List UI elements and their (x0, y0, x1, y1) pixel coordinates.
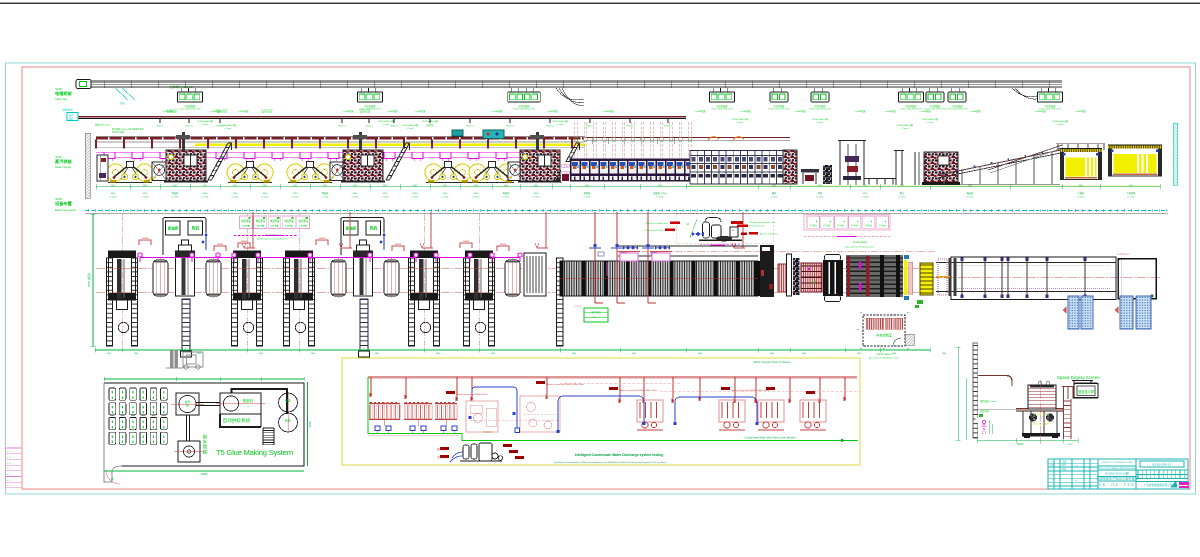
svg-text:蒸汽系统: 蒸汽系统 (591, 310, 601, 314)
svg-text:Consider this template is flat: Consider this template is flat (749, 221, 776, 224)
svg-text:路: 路 (203, 449, 208, 456)
svg-text:风机: 风机 (192, 226, 200, 231)
svg-text:5800: 5800 (311, 353, 315, 355)
svg-text:2200: 2200 (383, 193, 389, 195)
svg-text:DN25 Cy: DN25 Cy (664, 126, 671, 128)
svg-text:4600: 4600 (504, 185, 508, 187)
svg-text:(7 sets): (7 sets) (352, 195, 359, 198)
svg-text:4600: 4600 (534, 185, 538, 187)
svg-text:4600: 4600 (111, 193, 117, 195)
svg-text:[x]×[x]: [x]×[x] (575, 305, 582, 308)
svg-text:(5 sets 10m³): (5 sets 10m³) (261, 109, 273, 112)
svg-text:Not Backup for Counting Electr: Not Backup for Counting Electric (257, 238, 287, 241)
svg-text:5800: 5800 (134, 353, 138, 355)
svg-text:Steam Supply: Steam Supply (55, 165, 72, 169)
svg-text:DN25 Cy: DN25 Cy (546, 126, 553, 128)
svg-text:XXXXX CITY CORRUGATOR LINE: XXXXX CITY CORRUGATOR LINE (1102, 461, 1133, 464)
svg-text:DN25 Cy: DN25 Cy (185, 126, 192, 128)
svg-text:panel▮: panel▮ (271, 224, 278, 227)
svg-text:✖: ✖ (732, 229, 734, 232)
svg-text:4600: 4600 (413, 185, 417, 187)
svg-text:4600: 4600 (233, 185, 237, 187)
svg-text:(7 sets): (7 sets) (927, 121, 934, 124)
svg-text:电控柜▮: 电控柜▮ (284, 219, 294, 223)
svg-text:5800: 5800 (632, 353, 636, 355)
svg-text:电控柜▮: 电控柜▮ (270, 219, 280, 223)
svg-text:▮: ▮ (857, 220, 858, 223)
svg-text:DN25×6: DN25×6 (592, 316, 601, 319)
svg-text:▪ ▪: ▪ ▪ (1052, 479, 1054, 481)
svg-text:▪ ▪ ▪: ▪ ▪ ▪ (1075, 465, 1079, 467)
svg-text:(7 sets): (7 sets) (292, 195, 299, 198)
svg-text:中央控制室: 中央控制室 (876, 333, 892, 338)
svg-text:(7 sets): (7 sets) (533, 195, 540, 198)
svg-text:1AW.52ym: 1AW.52ym (1117, 252, 1129, 256)
svg-text:4600: 4600 (173, 185, 177, 187)
svg-text:WJ250-250×10层: WJ250-250×10层 (1105, 471, 1128, 476)
svg-text:Power Cable 3×95+2×50: Power Cable 3×95+2×50 (901, 108, 922, 111)
svg-text:(7 sets): (7 sets) (1128, 195, 1135, 198)
svg-text:Access Condenser: Access Condenser (760, 233, 778, 236)
svg-text:Cable Tray: Cable Tray (55, 97, 68, 101)
svg-text:4600: 4600 (818, 185, 822, 187)
svg-text:(7 sets): (7 sets) (110, 195, 117, 198)
svg-text:(5 sets 10m³): (5 sets 10m³) (216, 109, 228, 112)
svg-text:(Recycle Control Valve: (Recycle Control Valve (646, 222, 669, 225)
svg-text:(7 sets): (7 sets) (142, 195, 149, 198)
svg-text:6000: 6000 (308, 421, 312, 427)
svg-text:(7 sets): (7 sets) (262, 195, 269, 198)
svg-text:(7 sets): (7 sets) (1078, 195, 1085, 198)
svg-text:Power Cable 3×95+2×50: Power Cable 3×95+2×50 (514, 108, 535, 111)
svg-text:Power Cable 3×95+2×50: Power Cable 3×95+2×50 (180, 108, 201, 111)
svg-text:5800: 5800 (802, 353, 806, 355)
svg-text:4600: 4600 (968, 185, 972, 187)
svg-text:(7 sets): (7 sets) (503, 195, 510, 198)
svg-text:(7 sets): (7 sets) (202, 123, 209, 126)
svg-text:▮: ▮ (816, 220, 817, 223)
svg-text:DN25 Cy: DN25 Cy (365, 126, 372, 128)
svg-text:Steam Connection DN80×2.4Bar 1: Steam Connection DN80×2.4Bar 100m (546, 383, 584, 386)
svg-text:4600: 4600 (863, 185, 867, 187)
svg-text:▪ ·▪·: ▪ ·▪· (7, 468, 11, 471)
svg-text:Control Room: Control Room (853, 241, 867, 244)
svg-text:(Capacity Unit Use: (Capacity Unit Use (645, 229, 664, 232)
svg-text:5800: 5800 (259, 353, 263, 355)
svg-text:4600: 4600 (1079, 185, 1083, 187)
svg-text:蒸汽供给: 蒸汽供给 (55, 158, 73, 165)
svg-text:瓦楚纸板生产线总平面布置图: 瓦楚纸板生产线总平面布置图 (1096, 475, 1137, 480)
svg-text:DN25 Cy: DN25 Cy (338, 126, 345, 128)
svg-text:▮: ▮ (830, 220, 831, 223)
svg-text:Power Cable 3×95+2×50: Power Cable 3×95+2×50 (769, 108, 790, 111)
svg-text:4600: 4600 (658, 185, 662, 187)
svg-text:▮: ▮ (885, 220, 886, 223)
svg-text:4600: 4600 (143, 185, 147, 187)
svg-text:5800: 5800 (353, 193, 359, 195)
svg-text:1500: 1500 (1068, 444, 1074, 446)
svg-text:12000: 12000 (200, 472, 208, 476)
svg-text:吊轨: 吊轨 (120, 101, 125, 105)
svg-text:配胶机: 配胶机 (243, 398, 254, 403)
svg-text:(7+05×: (7+05× (810, 225, 818, 228)
svg-text:5800: 5800 (375, 353, 379, 355)
svg-text:(7 sets): (7 sets) (817, 121, 824, 124)
svg-text:YB. GA. FEB: YB. GA. FEB (1099, 483, 1135, 487)
svg-text:DN25 Cy: DN25 Cy (626, 126, 633, 128)
svg-text:8000 (跨度): 8000 (跨度) (87, 273, 91, 287)
svg-text:4600: 4600 (383, 185, 387, 187)
svg-text:▪ ·▪·: ▪ ·▪· (7, 450, 11, 453)
svg-text:T5 Glue Making System: T5 Glue Making System (216, 448, 293, 457)
svg-text:(7 sets): (7 sets) (899, 195, 906, 198)
svg-text:▪ ·▪·: ▪ ·▪· (7, 473, 11, 476)
svg-text:(5 sets 10m³): (5 sets 10m³) (166, 109, 178, 112)
svg-text:电控柜▮: 电控柜▮ (256, 219, 266, 223)
svg-text:5800: 5800 (436, 353, 440, 355)
svg-text:WJ250-2500-2-F: WJ250-2500-2-F (1152, 463, 1172, 467)
svg-text:(7 sets): (7 sets) (202, 195, 209, 198)
svg-text:4600: 4600 (443, 185, 447, 187)
svg-text:panel▮: panel▮ (285, 224, 292, 227)
svg-text:DN25 Cy: DN25 Cy (586, 126, 593, 128)
svg-text:2200: 2200 (143, 193, 149, 195)
svg-text:5800: 5800 (572, 353, 576, 355)
svg-text:(7 sets): (7 sets) (172, 195, 179, 198)
svg-text:5800: 5800 (857, 353, 861, 355)
svg-text:DN25 Cy: DN25 Cy (506, 126, 513, 128)
svg-text:(7 sets): (7 sets) (225, 127, 232, 130)
svg-text:(7 sets): (7 sets) (902, 127, 909, 130)
svg-text:2200: 2200 (443, 193, 449, 195)
svg-text:demo-line is oak: demo-line is oak (749, 225, 765, 227)
svg-text:Work Supply Pipe of Steam: Work Supply Pipe of Steam (754, 360, 791, 364)
svg-text:Steam Connection DN80×2.4Bar 1: Steam Connection DN80×2.4Bar 100m (731, 389, 769, 392)
svg-text:▪▪: ▪▪ (247, 405, 249, 408)
svg-text:DN25 Cy: DN25 Cy (466, 126, 473, 128)
svg-text:4600: 4600 (263, 193, 269, 195)
svg-text:PRODUCTION DRAWING APPROVAL SH: PRODUCTION DRAWING APPROVAL SHEET (1097, 467, 1137, 470)
svg-text:设备布置: 设备布置 (55, 200, 73, 207)
svg-text:(7+05×: (7+05× (823, 225, 831, 228)
svg-text:4600: 4600 (111, 185, 115, 187)
svg-text:5800: 5800 (698, 353, 702, 355)
svg-text:Steam Connection DN80×2.4Bar 1: Steam Connection DN80×2.4Bar 100m (619, 389, 657, 392)
svg-text:4600: 4600 (413, 193, 419, 195)
svg-text:Equipment Layout: Equipment Layout (55, 208, 76, 212)
svg-text:DN25 Cy: DN25 Cy (216, 126, 223, 128)
svg-text:(7+05×: (7+05× (879, 225, 887, 228)
svg-text:4600: 4600 (474, 193, 480, 195)
svg-text:(7+05×: (7+05× (851, 225, 859, 228)
svg-text:▪ ·▪·: ▪ ·▪· (7, 485, 11, 488)
svg-text:▪▪▪: ▪▪▪ (1075, 480, 1077, 482)
svg-text:电缆桥架: 电缆桥架 (55, 90, 73, 97)
svg-text:(By Carton Or Xiaokang Carrier: (By Carton Or Xiaokang Carrier (846, 246, 875, 249)
svg-text:(7 sets): (7 sets) (442, 195, 449, 198)
svg-text:4600: 4600 (323, 185, 327, 187)
svg-text:4600: 4600 (293, 185, 297, 187)
svg-text:▪ ·▪·: ▪ ·▪· (7, 479, 11, 482)
svg-text:panel▮: panel▮ (257, 224, 264, 227)
svg-text:5800: 5800 (534, 193, 540, 195)
svg-text:4600: 4600 (772, 185, 776, 187)
svg-text:▪ ·▪·: ▪ ·▪· (7, 462, 11, 465)
svg-text:4600: 4600 (263, 185, 267, 187)
svg-text:起重吊轨 Crane Rail: 起重吊轨 Crane Rail (170, 85, 194, 89)
svg-text:Power Cable 3×95+2×50: Power Cable 3×95+2×50 (947, 108, 968, 111)
svg-text:2200: 2200 (863, 193, 869, 195)
svg-text:panel▮: panel▮ (242, 224, 249, 227)
svg-text:Steam Connection DN80×2 50m: Steam Connection DN80×2 50m (456, 393, 488, 396)
svg-text:(7 sets): (7 sets) (1057, 123, 1064, 126)
svg-text:▮: ▮ (871, 220, 872, 223)
svg-text:4600: 4600 (474, 185, 478, 187)
svg-text:(7 sets): (7 sets) (584, 195, 591, 198)
svg-text:DN25 Cy: DN25 Cy (156, 126, 163, 128)
svg-text:(7 sets): (7 sets) (232, 195, 239, 198)
svg-text:机: 机 (186, 404, 189, 408)
svg-text:Condensate Water Main Pipe Low: Condensate Water Main Pipe Lower Bracket (744, 436, 795, 440)
svg-text:▪ ▪: ▪ ▪ (1051, 461, 1053, 463)
svg-text:4600: 4600 (585, 185, 589, 187)
svg-text:蒸油阀: 蒸油阀 (346, 226, 357, 231)
svg-text:Intelligent Condensate Water D: Intelligent Condensate Water Discharge s… (575, 453, 664, 457)
svg-text:4600: 4600 (1129, 185, 1133, 187)
svg-text:Speed Display Screen: Speed Display Screen (1057, 375, 1100, 380)
svg-text:Total Steam Consumption of Who: Total Steam Consumption of Whole line pr… (554, 461, 667, 464)
svg-text:(7 sets): (7 sets) (557, 123, 564, 126)
svg-text:蒸油阀: 蒸油阀 (168, 226, 179, 231)
svg-text:搅拌: 搅拌 (185, 400, 191, 404)
svg-text:电控柜▮: 电控柜▮ (241, 219, 251, 223)
svg-text:(7 sets): (7 sets) (383, 123, 390, 126)
svg-text:▪▪▪▪: ▪▪▪▪ (1075, 486, 1078, 488)
svg-text:panel▮: panel▮ (300, 224, 307, 227)
svg-text:5800: 5800 (107, 353, 111, 355)
svg-text:(7 sets): (7 sets) (862, 195, 869, 198)
svg-text:(7+05×: (7+05× (865, 225, 873, 228)
svg-text:2200: 2200 (233, 193, 239, 195)
svg-text:DN25 Cy: DN25 Cy (426, 126, 433, 128)
svg-text:(7 sets): (7 sets) (407, 127, 414, 130)
svg-text:(7 sets): (7 sets) (382, 195, 389, 198)
svg-text:By Carton Or Xiaokang Carrier: By Carton Or Xiaokang Carrier (869, 357, 899, 360)
svg-text:5800: 5800 (203, 193, 209, 195)
svg-text:广东省智能装备有限公司: 广东省智能装备有限公司 (1144, 483, 1173, 487)
svg-text:5800: 5800 (491, 353, 495, 355)
svg-text:10000: 10000 (1017, 443, 1024, 446)
svg-text:风机: 风机 (370, 226, 378, 231)
svg-text:5800: 5800 (770, 353, 774, 355)
svg-text:(7 sets): (7 sets) (412, 195, 419, 198)
svg-text:(7 sets): (7 sets) (967, 195, 974, 198)
svg-text:电控柜▮: 电控柜▮ (298, 219, 308, 223)
svg-text:(7 sets): (7 sets) (771, 195, 778, 198)
svg-text:(7 sets): (7 sets) (322, 195, 329, 198)
svg-text:(7 sets): (7 sets) (817, 195, 824, 198)
svg-text:▽: ▽ (232, 422, 234, 425)
svg-text:速度显示屏: 速度显示屏 (1078, 389, 1095, 394)
svg-text:Power Cable 3×95+2×50: Power Cable 3×95+2×50 (712, 108, 733, 111)
svg-text:(5 sets 10m³): (5 sets 10m³) (359, 109, 371, 112)
svg-text:自动供胶系统: 自动供胶系统 (223, 417, 251, 424)
svg-text:5800: 5800 (197, 353, 201, 355)
svg-text:5800: 5800 (942, 353, 946, 355)
svg-text:4600: 4600 (203, 185, 207, 187)
svg-text:▪ ·▪·: ▪ ·▪· (7, 456, 11, 459)
svg-text:2200: 2200 (293, 193, 299, 195)
svg-text:(7 sets): (7 sets) (657, 195, 664, 198)
svg-text:4600: 4600 (900, 185, 904, 187)
svg-text:Control Room: Control Room (877, 353, 892, 356)
svg-text:Power Cable 3×95+2×50: Power Cable 3×95+2×50 (810, 108, 831, 111)
svg-text:▮: ▮ (843, 220, 844, 223)
svg-text:(7+05×: (7+05× (837, 225, 845, 228)
svg-text:5800: 5800 (892, 353, 896, 355)
svg-text:(7 sets): (7 sets) (737, 121, 744, 124)
svg-text:4600: 4600 (353, 185, 357, 187)
svg-text:DN25 Cy: DN25 Cy (390, 126, 397, 128)
svg-text:(7 sets): (7 sets) (473, 195, 480, 198)
